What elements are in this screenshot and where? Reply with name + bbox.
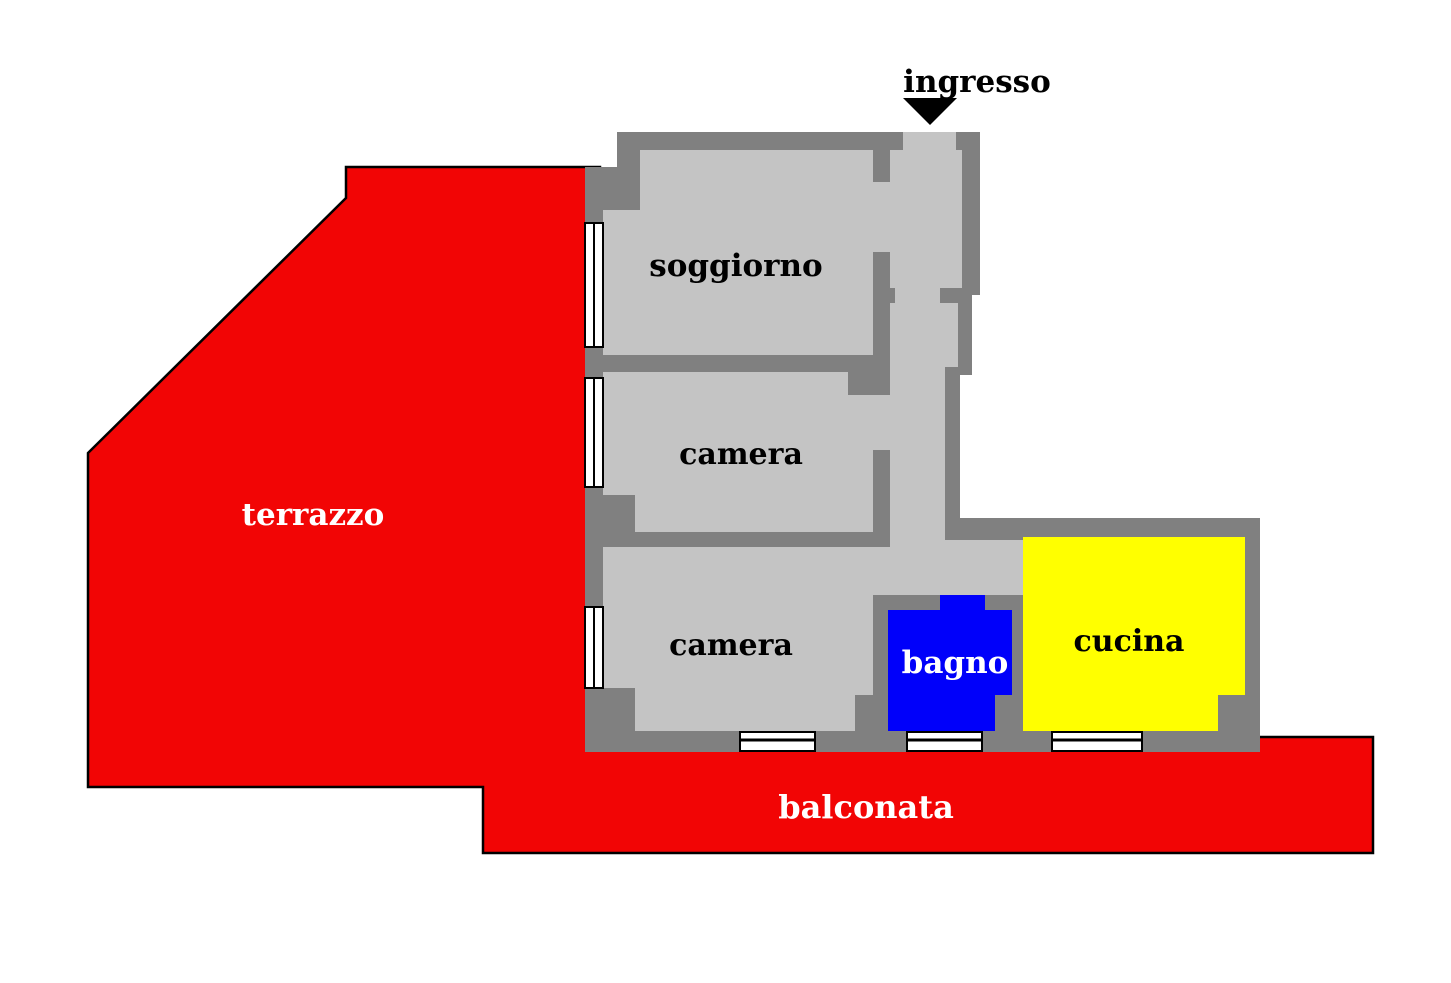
- label-terrazzo: terrazzo: [242, 497, 385, 533]
- label-camera2: camera: [669, 628, 793, 663]
- soggiorno-door-opening: [873, 182, 890, 252]
- floor-plan-page: ingresso terrazzo soggiorno camera camer…: [0, 0, 1451, 983]
- floor-plan-canvas: ingresso terrazzo soggiorno camera camer…: [0, 0, 1451, 983]
- windows-bottom: [740, 732, 1142, 751]
- camera1-door-opening: [873, 395, 890, 450]
- camera2-door-opening: [873, 547, 890, 595]
- label-ingresso: ingresso: [903, 64, 1051, 100]
- windows-left: [585, 223, 603, 688]
- ingresso-arrow-icon: [903, 98, 957, 125]
- label-soggiorno: soggiorno: [649, 248, 822, 284]
- label-camera1: camera: [679, 437, 803, 472]
- label-bagno: bagno: [902, 645, 1009, 681]
- label-cucina: cucina: [1074, 624, 1185, 659]
- label-balconata: balconata: [778, 788, 954, 826]
